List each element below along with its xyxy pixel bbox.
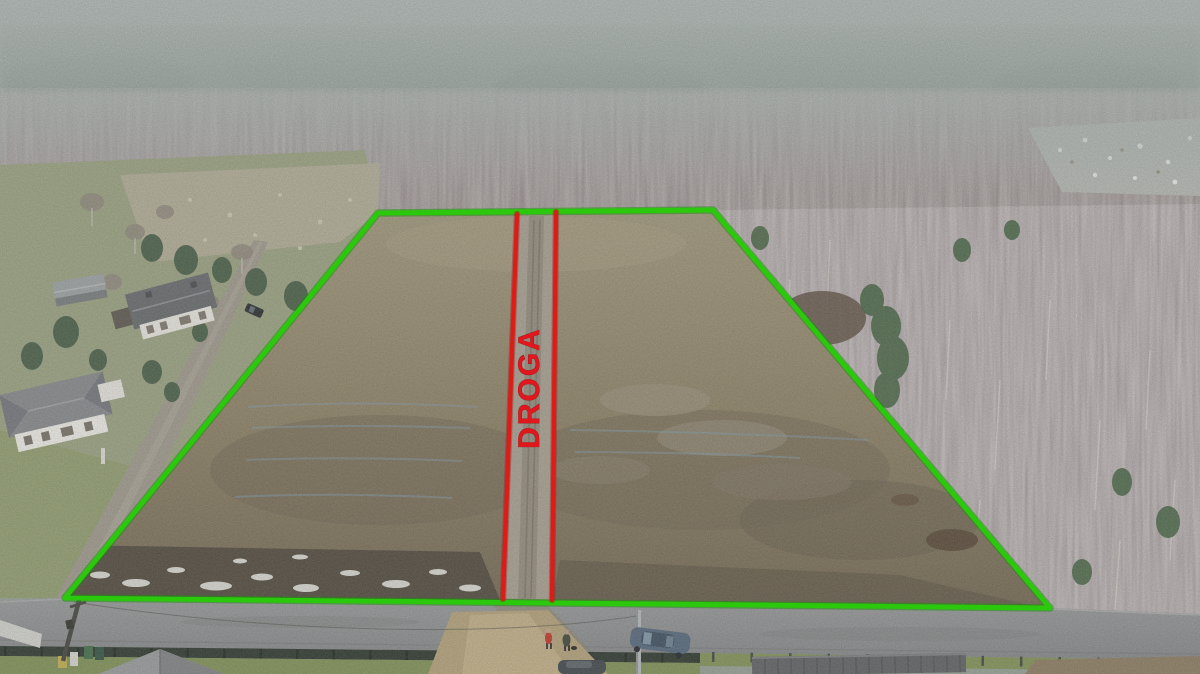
- aerial-photo-canvas: DROGA: [0, 0, 1200, 674]
- road-label: DROGA: [513, 327, 546, 449]
